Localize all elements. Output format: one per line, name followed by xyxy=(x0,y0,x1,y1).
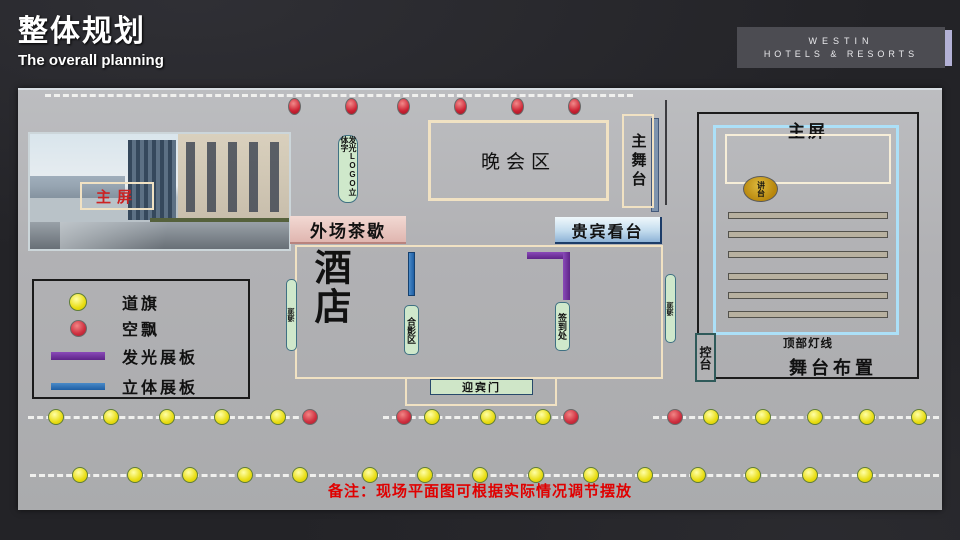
brand-tagline: HOTELS & RESORTS xyxy=(737,49,945,59)
photo-zone: 合影区 xyxy=(404,305,419,355)
red-dot-icon xyxy=(70,320,87,337)
legend-item: 立体展板 xyxy=(34,373,248,399)
road-flag-marker xyxy=(703,409,719,425)
slide-title-block: 整体规划 The overall planning xyxy=(18,6,164,69)
legend-item-label: 立体展板 xyxy=(122,374,198,398)
legend-item-label: 道旗 xyxy=(122,290,160,314)
road-flag-marker xyxy=(480,409,496,425)
signin-zone: 签到处 xyxy=(555,302,570,351)
road-flag-marker xyxy=(417,467,433,483)
legend-item: 空飘 xyxy=(34,315,248,341)
podium: 讲台 xyxy=(743,176,778,202)
welcome-gate: 迎宾门 xyxy=(430,379,533,395)
control-console: 控台 xyxy=(695,333,716,382)
legend-item: 发光展板 xyxy=(34,343,248,369)
air-balloon-marker xyxy=(568,98,581,115)
air-balloon-marker xyxy=(397,98,410,115)
road-flag-marker xyxy=(472,467,488,483)
road-flag-marker xyxy=(72,467,88,483)
air-balloon-marker xyxy=(563,409,579,425)
road-flag-marker xyxy=(127,467,143,483)
road-flag-marker xyxy=(745,467,761,483)
page-title: 整体规划 xyxy=(18,6,164,50)
air-balloon-marker xyxy=(396,409,412,425)
left-passage-label: 通道 xyxy=(287,308,297,322)
blue-bar-icon xyxy=(51,383,105,390)
top-dashed-line xyxy=(45,94,633,97)
road-flag-marker xyxy=(857,467,873,483)
party-area-label: 晚会区 xyxy=(481,147,556,174)
main-stage-label: 主舞台 xyxy=(628,133,649,190)
brand-name: WESTIN xyxy=(737,36,945,46)
road-flag-marker xyxy=(237,467,253,483)
road-flag-marker xyxy=(103,409,119,425)
hotel-label: 酒店 xyxy=(302,248,356,326)
vip-stand: 贵宾看台 xyxy=(555,217,662,244)
control-console-label: 控台 xyxy=(697,346,714,370)
road-flag-marker xyxy=(362,467,378,483)
road-flag-marker xyxy=(859,409,875,425)
podium-label: 讲台 xyxy=(757,181,765,197)
glow-logo-pillar: 发光LOGO立体字 xyxy=(338,135,358,203)
stage-layout-panel: 主屏 讲台 顶部灯线 控台 舞台布置 xyxy=(697,112,919,379)
westin-logo: WESTIN HOTELS & RESORTS xyxy=(737,27,945,68)
road-flag-marker xyxy=(690,467,706,483)
main-stage: 主舞台 xyxy=(622,114,654,208)
road-flag-marker xyxy=(911,409,927,425)
legend: 道旗空飘发光展板立体展板 xyxy=(32,279,250,399)
brand-accent-bar xyxy=(945,30,952,66)
seat-row xyxy=(728,292,888,299)
left-passage: 通道 xyxy=(286,279,297,351)
road-flag-marker xyxy=(270,409,286,425)
road-flag-marker xyxy=(637,467,653,483)
road-flag-marker xyxy=(48,409,64,425)
legend-item: 道旗 xyxy=(34,289,248,315)
photo-main-screen-marker: 主屏 xyxy=(80,182,154,210)
legend-item-label: 空飘 xyxy=(122,316,160,340)
air-balloon-marker xyxy=(288,98,301,115)
photo-pavement-highlight xyxy=(60,222,210,251)
seat-row xyxy=(728,231,888,238)
seat-row xyxy=(728,311,888,318)
right-passage-label: 通道 xyxy=(666,302,676,316)
yellow-dot-icon xyxy=(69,293,87,311)
photo-zone-label: 合影区 xyxy=(405,317,418,344)
seat-row xyxy=(728,251,888,258)
air-balloon-marker xyxy=(667,409,683,425)
site-photo: 主屏 xyxy=(28,132,291,251)
air-balloon-marker xyxy=(511,98,524,115)
air-balloon-marker xyxy=(345,98,358,115)
stage-layout-title: 舞台布置 xyxy=(789,354,877,380)
floor-plan: 主屏 发光LOGO立体字 晚会区 主舞台 外场茶歇 贵宾看台 酒店 迎宾门 通道… xyxy=(18,88,942,510)
party-area: 晚会区 xyxy=(428,120,609,201)
solid-display-board xyxy=(408,252,415,296)
right-passage: 通道 xyxy=(665,274,676,343)
glow-display-board-v xyxy=(563,252,570,300)
road-flag-marker xyxy=(535,409,551,425)
note-text: 备注：现场平面图可根据实际情况调节摆放 xyxy=(18,480,942,501)
road-flag-marker xyxy=(802,467,818,483)
tea-break-area: 外场茶歇 xyxy=(290,216,406,244)
seat-row xyxy=(728,273,888,280)
road-flag-marker xyxy=(807,409,823,425)
page-subtitle: The overall planning xyxy=(18,52,164,69)
road-flag-marker xyxy=(292,467,308,483)
glow-logo-pillar-label: 发光LOGO立体字 xyxy=(340,136,356,202)
air-balloon-marker xyxy=(302,409,318,425)
air-balloon-marker xyxy=(454,98,467,115)
legend-item-label: 发光展板 xyxy=(122,344,198,368)
stage-screen xyxy=(725,134,891,184)
purple-bar-icon xyxy=(51,352,105,360)
road-flag-marker xyxy=(182,467,198,483)
road-flag-marker xyxy=(583,467,599,483)
road-flag-marker xyxy=(424,409,440,425)
flag-row1-dash-c xyxy=(653,416,939,419)
road-flag-marker xyxy=(755,409,771,425)
road-flag-marker xyxy=(214,409,230,425)
boundary-line xyxy=(665,100,667,205)
top-light-line-label: 顶部灯线 xyxy=(699,335,917,351)
seat-row xyxy=(728,212,888,219)
photo-facade-windows xyxy=(186,142,286,212)
signin-zone-label: 签到处 xyxy=(556,313,569,340)
road-flag-marker xyxy=(528,467,544,483)
road-flag-marker xyxy=(159,409,175,425)
